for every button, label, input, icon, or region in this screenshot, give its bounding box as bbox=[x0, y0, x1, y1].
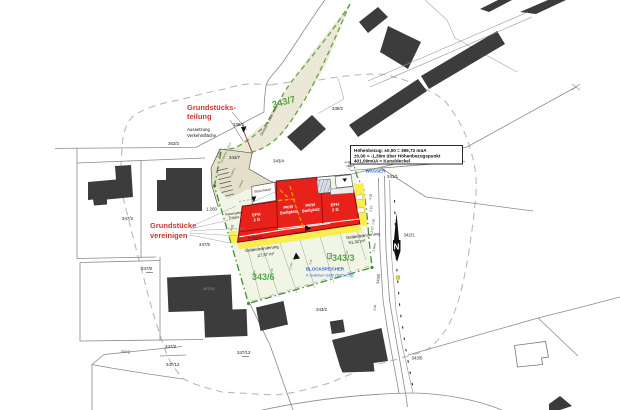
svg-text:343/7: 343/7 bbox=[229, 155, 241, 160]
svg-text:1.50: 1.50 bbox=[371, 218, 376, 225]
svg-text:336/2: 336/2 bbox=[233, 122, 245, 127]
svg-text:BLOCKSPEICHER: BLOCKSPEICHER bbox=[306, 267, 345, 272]
svg-text:343/6: 343/6 bbox=[252, 272, 275, 282]
svg-text:347/3: 347/3 bbox=[165, 344, 177, 349]
svg-text:343/5: 343/5 bbox=[412, 356, 424, 361]
svg-text:1.260: 1.260 bbox=[206, 207, 218, 212]
svg-text:Grundstücks-: Grundstücks- bbox=[187, 103, 236, 112]
svg-text:Aussetzung: Aussetzung bbox=[187, 127, 211, 132]
svg-text:401,09müA = Kanaldeckel: 401,09müA = Kanaldeckel bbox=[354, 159, 410, 164]
svg-text:vereinigen: vereinigen bbox=[150, 231, 188, 240]
svg-text:363/2: 363/2 bbox=[168, 141, 180, 146]
svg-text:347/2: 347/2 bbox=[122, 216, 134, 221]
svg-text:WASSER: WASSER bbox=[366, 169, 387, 174]
svg-text:347/5: 347/5 bbox=[199, 242, 211, 247]
svg-text:341/1: 341/1 bbox=[387, 174, 399, 179]
svg-text:Verkehrsfläche: Verkehrsfläche bbox=[187, 133, 217, 138]
svg-text:347/13: 347/13 bbox=[237, 350, 251, 355]
svg-text:347/12: 347/12 bbox=[166, 362, 180, 367]
svg-text:343/3: 343/3 bbox=[332, 253, 355, 263]
svg-text:N: N bbox=[394, 243, 400, 252]
svg-text:2 G: 2 G bbox=[253, 217, 260, 223]
svg-text:2 G: 2 G bbox=[332, 207, 339, 213]
svg-text:342/1: 342/1 bbox=[404, 233, 416, 238]
svg-text:±0,00 = -1,36m über Höhenbezug: ±0,00 = -1,36m über Höhenbezugspunkt bbox=[354, 153, 441, 158]
svg-text:teilung: teilung bbox=[187, 112, 212, 121]
svg-text:Weg: Weg bbox=[121, 349, 131, 354]
svg-text:347/10: 347/10 bbox=[203, 287, 215, 291]
svg-text:3.05: 3.05 bbox=[373, 304, 378, 311]
svg-text:347/8: 347/8 bbox=[141, 266, 153, 271]
svg-text:Höhenbezug: ±0,00 = 399,73 müA: Höhenbezug: ±0,00 = 399,73 müA bbox=[354, 148, 427, 153]
svg-text:K Golichen GDP 25.01.2022: K Golichen GDP 25.01.2022 bbox=[306, 274, 354, 278]
svg-text:343/4: 343/4 bbox=[273, 159, 285, 164]
svg-text:343/2: 343/2 bbox=[316, 307, 328, 312]
svg-text:339/2: 339/2 bbox=[332, 106, 344, 111]
svg-text:Grundstücke: Grundstücke bbox=[150, 221, 196, 230]
